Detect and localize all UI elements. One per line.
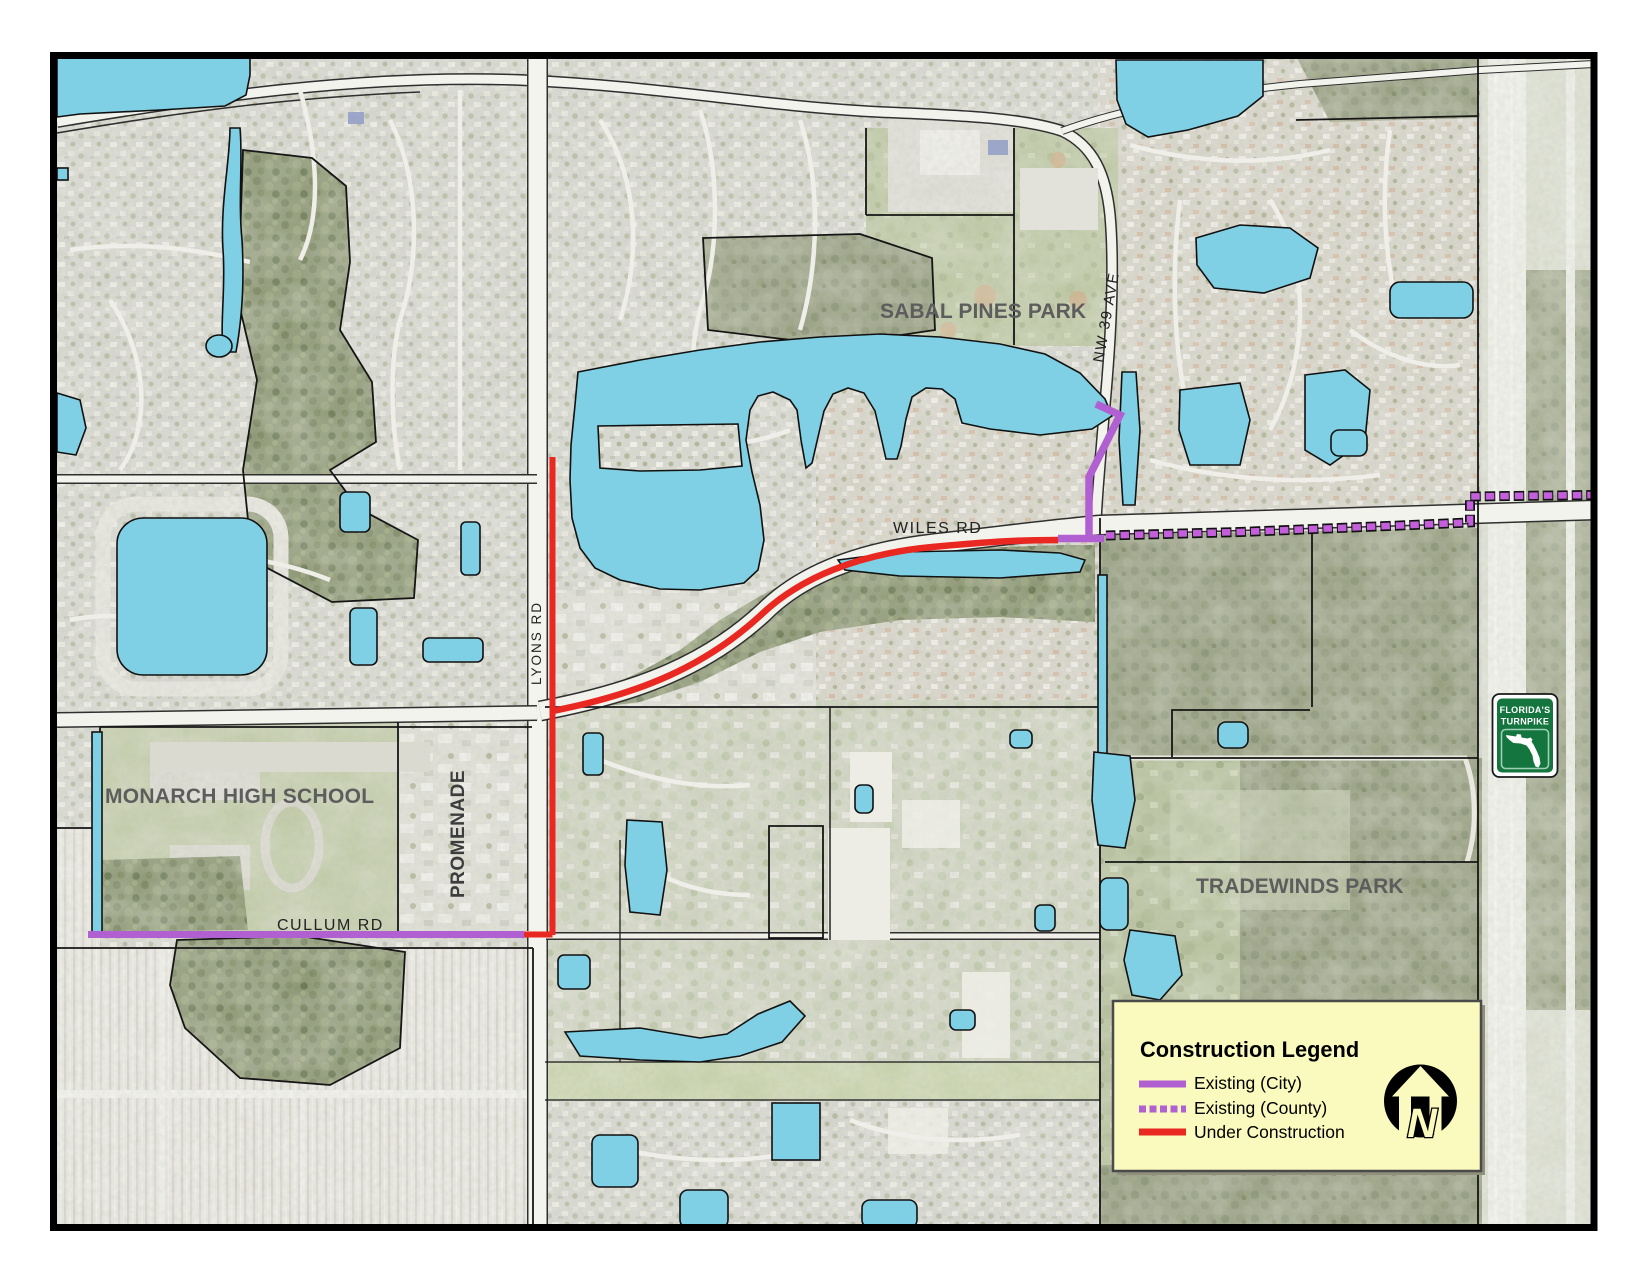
svg-text:N: N (1407, 1100, 1438, 1146)
svg-text:WILES RD: WILES RD (893, 520, 982, 537)
svg-text:Under Construction: Under Construction (1194, 1122, 1345, 1142)
svg-text:PROMENADE: PROMENADE (448, 770, 469, 898)
svg-text:TRADEWINDS PARK: TRADEWINDS PARK (1196, 875, 1404, 898)
svg-text:FLORIDA'S: FLORIDA'S (1500, 705, 1551, 715)
svg-text:Existing (County): Existing (County) (1194, 1098, 1327, 1118)
svg-text:LYONS RD: LYONS RD (529, 601, 544, 685)
svg-text:Construction Legend: Construction Legend (1140, 1037, 1359, 1062)
svg-text:CULLUM RD: CULLUM RD (277, 917, 384, 934)
svg-text:TURNPIKE: TURNPIKE (1501, 717, 1549, 727)
svg-text:MONARCH HIGH SCHOOL: MONARCH HIGH SCHOOL (105, 785, 374, 808)
svg-text:SABAL PINES PARK: SABAL PINES PARK (880, 300, 1086, 323)
svg-text:Existing (City): Existing (City) (1194, 1073, 1302, 1093)
